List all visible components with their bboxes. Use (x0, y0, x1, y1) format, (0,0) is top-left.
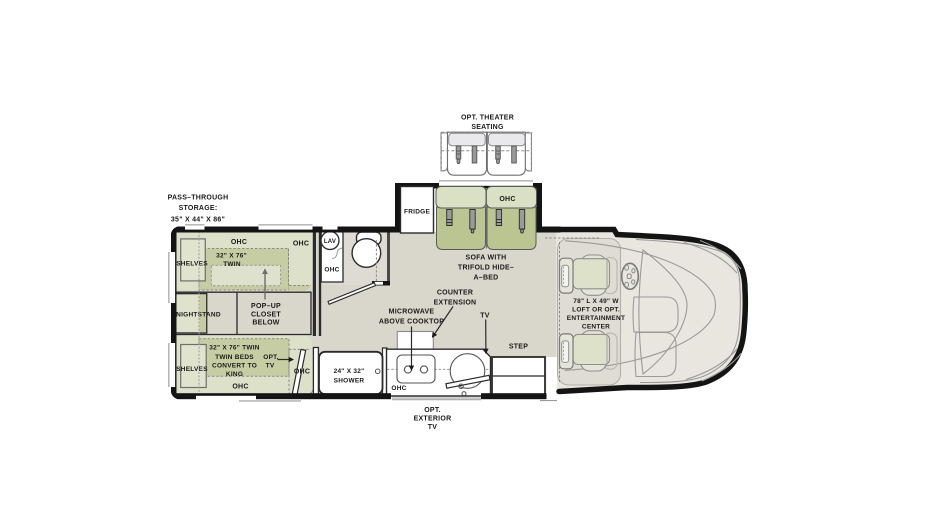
svg-text:MICROWAVE: MICROWAVE (389, 308, 435, 315)
svg-text:STEP: STEP (509, 343, 528, 350)
svg-text:OHC: OHC (391, 385, 406, 392)
svg-text:SHOWER: SHOWER (334, 378, 365, 385)
svg-text:32" X 76" TWIN: 32" X 76" TWIN (209, 344, 260, 351)
svg-text:OPT.: OPT. (424, 407, 441, 414)
svg-text:CONVERT TO: CONVERT TO (212, 362, 257, 369)
svg-text:STORAGE:: STORAGE: (179, 205, 218, 212)
svg-text:TV: TV (266, 362, 275, 369)
svg-text:ENTERTAINMENT: ENTERTAINMENT (567, 315, 625, 322)
svg-text:OHC: OHC (499, 196, 515, 203)
svg-text:78" L X 49" W: 78" L X 49" W (573, 298, 619, 305)
svg-text:CLOSET: CLOSET (251, 311, 281, 318)
svg-text:TWIN BEDS: TWIN BEDS (215, 354, 254, 361)
svg-text:EXTERIOR: EXTERIOR (414, 416, 452, 423)
svg-text:32" X 76": 32" X 76" (216, 253, 247, 260)
svg-text:ABOVE COOKTOP: ABOVE COOKTOP (379, 318, 444, 325)
svg-text:SOFA WITH: SOFA WITH (466, 254, 507, 261)
svg-text:OHC: OHC (232, 383, 248, 390)
svg-text:TWIN: TWIN (223, 261, 241, 268)
svg-text:LAV: LAV (324, 239, 336, 245)
svg-text:LOFT OR OPT.: LOFT OR OPT. (572, 307, 620, 314)
svg-text:TRIFOLD HIDE–: TRIFOLD HIDE– (458, 264, 514, 271)
svg-text:SEATING: SEATING (471, 124, 504, 131)
svg-text:CENTER: CENTER (582, 324, 610, 331)
svg-text:OPT. THEATER: OPT. THEATER (461, 115, 514, 122)
svg-text:OHC: OHC (294, 369, 310, 376)
svg-text:SHELVES: SHELVES (176, 260, 208, 267)
svg-text:35" X 44" X 86": 35" X 44" X 86" (171, 217, 225, 224)
svg-text:SHELVES: SHELVES (176, 366, 208, 373)
svg-text:TV: TV (480, 312, 490, 319)
svg-text:EXTENSION: EXTENSION (434, 299, 477, 306)
svg-text:BELOW: BELOW (252, 320, 279, 327)
svg-text:24" X 32": 24" X 32" (334, 368, 365, 375)
svg-text:PASS–THROUGH: PASS–THROUGH (168, 195, 229, 202)
svg-text:TV: TV (428, 424, 438, 431)
svg-text:OHC: OHC (293, 240, 309, 247)
svg-text:A–BED: A–BED (474, 274, 499, 281)
svg-text:OHC: OHC (324, 267, 339, 274)
svg-text:COUNTER: COUNTER (437, 289, 473, 296)
svg-text:POP–UP: POP–UP (251, 303, 281, 310)
svg-text:KING: KING (226, 371, 243, 378)
svg-text:OPT.: OPT. (263, 354, 278, 361)
svg-text:OHC: OHC (231, 239, 247, 246)
svg-text:FRIDGE: FRIDGE (404, 209, 430, 216)
